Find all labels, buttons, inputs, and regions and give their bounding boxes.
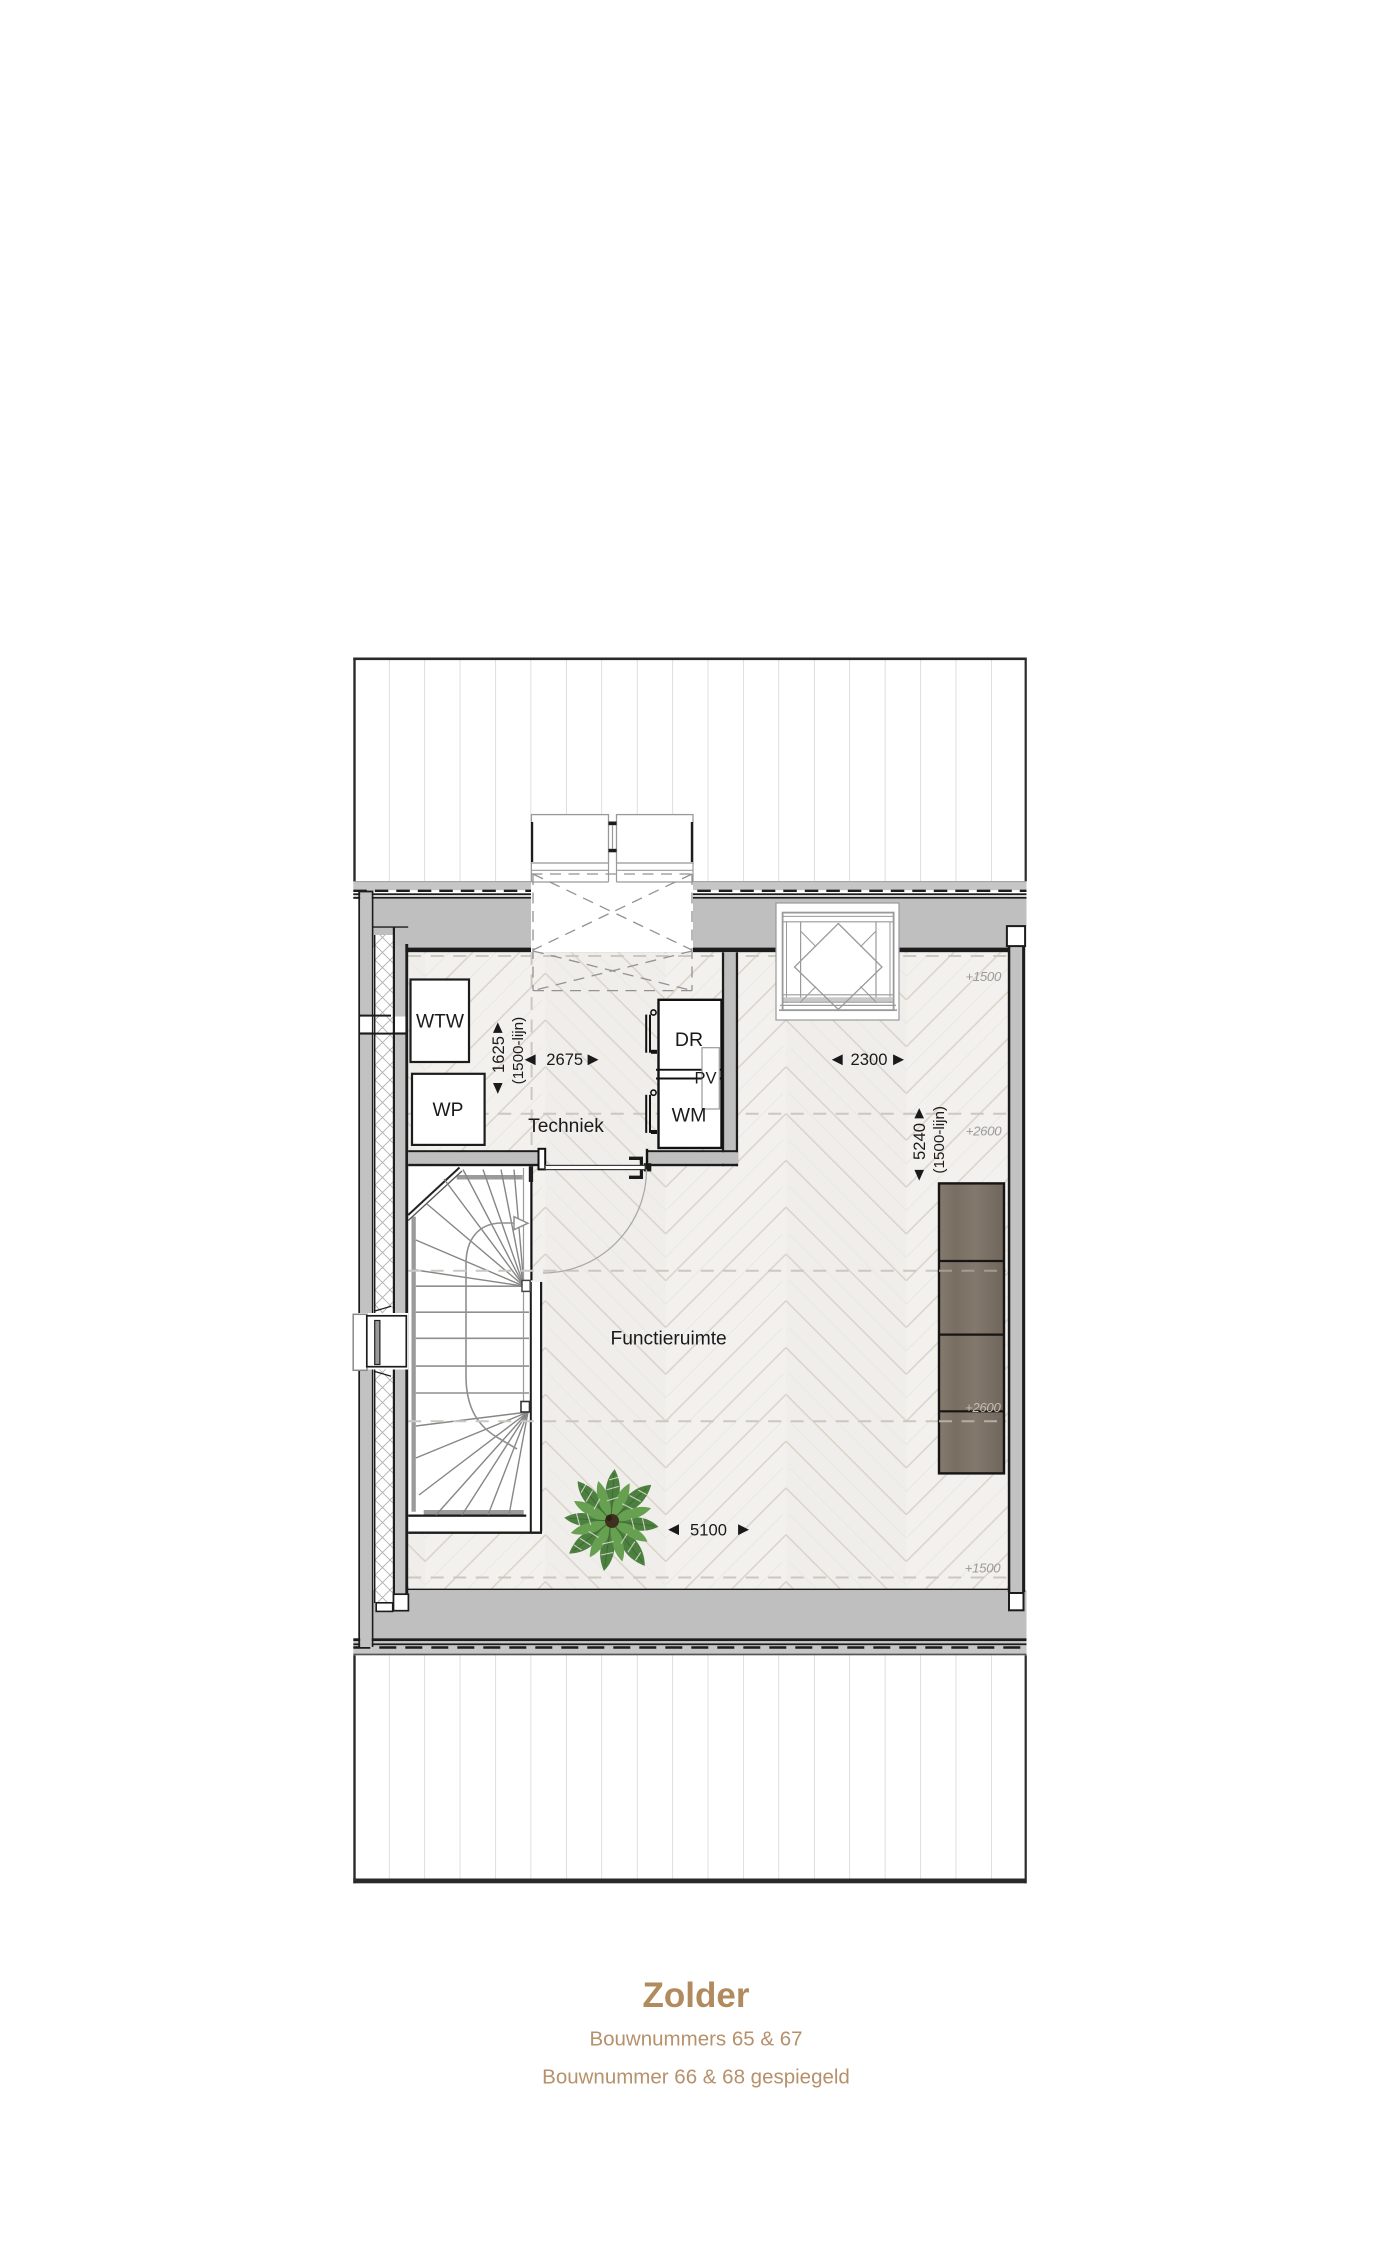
svg-text:PV: PV	[694, 1070, 716, 1088]
svg-text:1625: 1625	[489, 1036, 508, 1073]
svg-text:Functieruimte: Functieruimte	[610, 1329, 726, 1350]
svg-text:Bouwnummers 65 & 67: Bouwnummers 65 & 67	[589, 2027, 802, 2050]
svg-text:(1500-lijn): (1500-lijn)	[931, 1106, 948, 1174]
svg-text:DR: DR	[675, 1029, 703, 1051]
svg-text:+2600: +2600	[965, 1400, 1002, 1415]
svg-text:2675: 2675	[546, 1050, 583, 1069]
svg-text:+2600: +2600	[966, 1124, 1003, 1139]
svg-text:+1500: +1500	[965, 1560, 1002, 1575]
svg-text:2300: 2300	[851, 1050, 888, 1069]
svg-text:(1500-lijn): (1500-lijn)	[510, 1017, 527, 1085]
svg-text:5100: 5100	[690, 1521, 727, 1540]
svg-text:Bouwnummer 66 & 68 gespiegeld: Bouwnummer 66 & 68 gespiegeld	[542, 2065, 850, 2088]
svg-text:WP: WP	[433, 1100, 464, 1121]
svg-text:+1500: +1500	[965, 969, 1002, 984]
svg-text:Techniek: Techniek	[528, 1116, 604, 1137]
svg-text:WTW: WTW	[416, 1012, 465, 1033]
svg-text:WM: WM	[672, 1104, 707, 1126]
svg-text:5240: 5240	[910, 1123, 929, 1160]
svg-text:Zolder: Zolder	[643, 1976, 750, 2015]
